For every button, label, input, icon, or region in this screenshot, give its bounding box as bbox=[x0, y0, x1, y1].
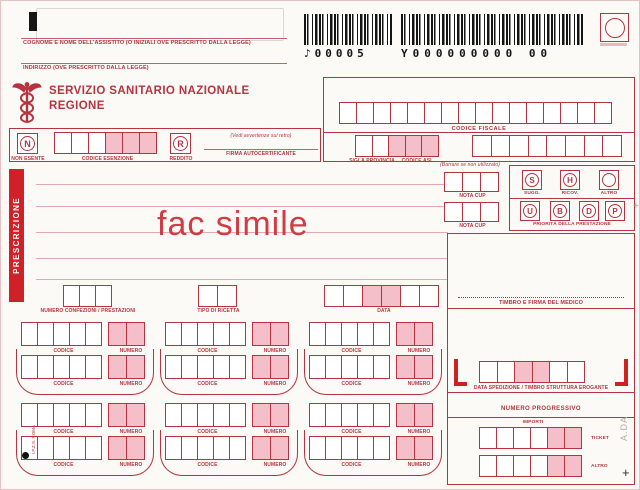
box-cell bbox=[217, 285, 237, 307]
tipologia-divider bbox=[510, 198, 634, 199]
box-cell bbox=[270, 322, 289, 346]
reddito-letter: R bbox=[173, 136, 188, 151]
box-cell bbox=[564, 455, 582, 477]
box-cell bbox=[213, 322, 230, 346]
box-cell bbox=[85, 403, 102, 427]
code-group: CODICENUMERO CODICENUMERO bbox=[304, 403, 442, 469]
box-cell bbox=[564, 427, 582, 449]
barcode-1-text: ♪00005 bbox=[304, 47, 368, 60]
box-cell bbox=[122, 132, 140, 154]
patient-name-label: COGNOME E NOME DELL'ASSISTITO (O INIZIAL… bbox=[23, 40, 251, 46]
numero-cells bbox=[396, 403, 433, 427]
box-cell bbox=[69, 322, 86, 346]
box-cell bbox=[444, 172, 463, 192]
box-cell bbox=[85, 322, 102, 346]
priorita-p-letter: P bbox=[608, 204, 622, 218]
box-cell bbox=[396, 322, 415, 346]
box-cell bbox=[414, 403, 433, 427]
data-spedizione-section: DATA SPEDIZIONE / TIMBRO STRUTTURA EROGA… bbox=[447, 308, 635, 393]
box-cell bbox=[341, 322, 358, 346]
box-cell bbox=[532, 361, 551, 383]
codice-cells bbox=[165, 322, 246, 346]
box-cell bbox=[54, 132, 72, 154]
altro-circle bbox=[602, 173, 616, 187]
numero-progressivo-label: NUMERO PROGRESSIVO bbox=[448, 406, 634, 412]
box-cell bbox=[458, 102, 476, 124]
data-spedizione-cells bbox=[479, 361, 585, 383]
stamp-logo-circle bbox=[605, 18, 625, 38]
patient-address-label: INDIRIZZO (OVE PRESCRITTO DALLA LEGGE) bbox=[23, 65, 149, 71]
box-cell bbox=[567, 361, 586, 383]
codice-cells bbox=[309, 322, 390, 346]
box-cell bbox=[362, 285, 382, 307]
box-cell bbox=[229, 322, 246, 346]
importi-altro-cells bbox=[479, 455, 582, 477]
box-cell bbox=[496, 455, 514, 477]
org-title-line1: SERVIZIO SANITARIO NAZIONALE bbox=[49, 85, 250, 97]
box-cell bbox=[496, 427, 514, 449]
barrare-note: (Barrare se non utilizzato) bbox=[430, 162, 510, 168]
importi-label: IMPORTI bbox=[483, 420, 583, 425]
box-cell bbox=[63, 285, 80, 307]
box-cell bbox=[424, 102, 442, 124]
box-cell bbox=[88, 132, 106, 154]
non-esente-letter: N bbox=[20, 136, 35, 151]
ricov-letter: H bbox=[563, 173, 577, 187]
tipologia-section: S H SUGG. RICOV. ALTRO U B D P PRIORITÀ … bbox=[509, 165, 635, 231]
codice-cells bbox=[21, 322, 102, 346]
numero-cells bbox=[252, 322, 289, 346]
barcode-2-text: Y000000000 00 bbox=[401, 47, 552, 60]
box-cell bbox=[546, 135, 566, 157]
group-bracket bbox=[16, 349, 154, 395]
box-cell bbox=[165, 322, 182, 346]
cf-divider bbox=[324, 132, 634, 133]
box-cell bbox=[414, 322, 433, 346]
registration-plus-right: + bbox=[633, 201, 639, 212]
timbro-signature-line bbox=[458, 297, 624, 298]
numero-progressivo-section: NUMERO PROGRESSIVO IMPORTI TICKET ALTRO bbox=[447, 392, 635, 485]
box-cell bbox=[514, 361, 533, 383]
box-cell bbox=[309, 322, 326, 346]
nota-cup-label-2: NOTA CUP bbox=[444, 223, 501, 229]
sugg-letter: S bbox=[525, 173, 539, 187]
firma-label: FIRMA AUTOCERTIFICANTE bbox=[202, 151, 320, 157]
box-cell bbox=[165, 403, 182, 427]
data-cells bbox=[324, 285, 439, 307]
numero-cells bbox=[252, 403, 289, 427]
box-cell bbox=[491, 135, 511, 157]
box-cell bbox=[407, 102, 425, 124]
box-cell bbox=[509, 102, 527, 124]
registration-dot bbox=[22, 452, 29, 459]
box-cell bbox=[139, 132, 157, 154]
box-cell bbox=[198, 285, 218, 307]
box-cell bbox=[492, 102, 510, 124]
box-cell bbox=[252, 322, 271, 346]
priorita-label: PRIORITÀ DELLA PRESTAZIONE bbox=[510, 222, 634, 227]
sugg-label: SUGG. bbox=[512, 191, 552, 196]
box-cell bbox=[530, 427, 548, 449]
corner-bracket-left bbox=[454, 359, 467, 386]
box-cell bbox=[357, 322, 374, 346]
box-cell bbox=[565, 135, 585, 157]
box-cell bbox=[543, 102, 561, 124]
box-cell bbox=[441, 102, 459, 124]
box-cell bbox=[373, 322, 390, 346]
stamp-logo bbox=[600, 13, 629, 42]
nota-cup-cells-2 bbox=[444, 202, 499, 222]
box-cell bbox=[547, 427, 565, 449]
reddito-label: REDDITO bbox=[160, 156, 202, 162]
data-label: DATA bbox=[324, 308, 444, 314]
ticket-label: TICKET bbox=[591, 436, 609, 441]
non-esente-checkbox: N bbox=[17, 133, 38, 154]
box-cell bbox=[229, 403, 246, 427]
box-cell bbox=[126, 403, 145, 427]
firma-line bbox=[204, 149, 318, 150]
group-bracket bbox=[16, 430, 154, 476]
registration-mark bbox=[29, 12, 37, 31]
box-cell bbox=[95, 285, 112, 307]
box-cell bbox=[419, 285, 439, 307]
box-cell bbox=[509, 135, 529, 157]
data-spedizione-label: DATA SPEDIZIONE / TIMBRO STRUTTURA EROGA… bbox=[448, 385, 634, 391]
caduceus-icon bbox=[12, 81, 42, 125]
box-cell bbox=[396, 403, 415, 427]
barcode-1 bbox=[304, 14, 392, 45]
reddito-checkbox: R bbox=[170, 133, 191, 154]
rx-ruled-line bbox=[36, 258, 448, 259]
box-cell bbox=[373, 102, 391, 124]
group-bracket bbox=[160, 349, 298, 395]
box-cell bbox=[390, 102, 408, 124]
numero-cells bbox=[108, 403, 145, 427]
numero-confezioni-cells bbox=[63, 285, 112, 307]
codice-cells bbox=[21, 403, 102, 427]
box-cell bbox=[108, 403, 127, 427]
ipzs-imprint: I.P.Z.S. ROMA bbox=[31, 425, 36, 454]
timbro-medico-section: TIMBRO E FIRMA DEL MEDICO bbox=[447, 233, 635, 309]
codice-fiscale-section: CODICE FISCALE SIGLA PROVINCIA CODICE AS… bbox=[323, 77, 635, 162]
box-cell bbox=[71, 132, 89, 154]
barcode-2 bbox=[401, 14, 583, 45]
box-cell bbox=[444, 202, 463, 222]
org-title-line2: REGIONE bbox=[49, 100, 105, 112]
rx-ruled-line bbox=[36, 184, 448, 185]
nota-cup-label-1: NOTA CUP bbox=[444, 193, 501, 199]
box-cell bbox=[560, 102, 578, 124]
box-cell bbox=[270, 403, 289, 427]
box-cell bbox=[324, 285, 344, 307]
box-cell bbox=[325, 322, 342, 346]
ricov-label: RICOV. bbox=[550, 191, 590, 196]
box-cell bbox=[37, 403, 54, 427]
box-cell bbox=[497, 361, 516, 383]
box-cell bbox=[549, 361, 568, 383]
box-cell bbox=[21, 322, 38, 346]
patient-address-line bbox=[21, 63, 287, 64]
prescription-form: COGNOME E NOME DELL'ASSISTITO (O INIZIAL… bbox=[0, 0, 640, 490]
group-bracket bbox=[304, 349, 442, 395]
cf-extra-cells bbox=[472, 135, 622, 157]
box-cell bbox=[513, 427, 531, 449]
box-cell bbox=[108, 322, 127, 346]
box-cell bbox=[357, 403, 374, 427]
priorita-d-letter: D bbox=[582, 204, 596, 218]
box-cell bbox=[381, 285, 401, 307]
tipo-ricetta-label: TIPO DI RICETTA bbox=[176, 308, 261, 314]
codice-fiscale-cells bbox=[339, 102, 612, 124]
box-cell bbox=[309, 403, 326, 427]
prescrizione-sidebar: PRESCRIZIONE bbox=[9, 169, 24, 302]
box-cell bbox=[53, 403, 70, 427]
box-cell bbox=[343, 285, 363, 307]
fac-simile-watermark: fac simile bbox=[157, 205, 309, 244]
box-cell bbox=[325, 403, 342, 427]
box-cell bbox=[21, 403, 38, 427]
patient-name-line bbox=[21, 38, 287, 39]
box-cell bbox=[53, 322, 70, 346]
box-cell bbox=[126, 322, 145, 346]
group-bracket bbox=[304, 430, 442, 476]
box-cell bbox=[528, 135, 548, 157]
corner-bracket-right bbox=[615, 359, 628, 386]
codice-esenzione-label: CODICE ESENZIONE bbox=[54, 156, 161, 162]
box-cell bbox=[472, 135, 492, 157]
priorita-u-letter: U bbox=[523, 204, 537, 218]
box-cell bbox=[526, 102, 544, 124]
code-group: CODICENUMERO CODICENUMERO bbox=[304, 322, 442, 388]
box-cell bbox=[197, 322, 214, 346]
box-cell bbox=[513, 455, 531, 477]
importi-ticket-cells bbox=[479, 427, 582, 449]
box-cell bbox=[181, 403, 198, 427]
box-cell bbox=[69, 403, 86, 427]
avvertenze-note: (Vedi avvertenze sul retro) bbox=[202, 133, 320, 139]
box-cell bbox=[462, 202, 481, 222]
tipo-ricetta-cells bbox=[198, 285, 237, 307]
box-cell bbox=[421, 135, 439, 157]
numero-confezioni-label: NUMERO CONFEZIONI / PRESTAZIONI bbox=[29, 308, 147, 314]
box-cell bbox=[213, 403, 230, 427]
ghost-field-outline bbox=[36, 8, 284, 41]
altro-importo-label: ALTRO bbox=[591, 464, 608, 469]
box-cell bbox=[479, 427, 497, 449]
progressivo-divider bbox=[448, 417, 634, 418]
registration-plus-bottom: + bbox=[622, 465, 630, 480]
box-cell bbox=[577, 102, 595, 124]
codice-cells bbox=[309, 403, 390, 427]
box-cell bbox=[388, 135, 406, 157]
ada-edge-text: A.DA bbox=[619, 416, 629, 441]
box-cell bbox=[197, 403, 214, 427]
box-cell bbox=[594, 102, 612, 124]
box-cell bbox=[355, 135, 373, 157]
box-cell bbox=[37, 322, 54, 346]
box-cell bbox=[479, 455, 497, 477]
code-group: CODICENUMERO CODICENUMERO bbox=[16, 322, 154, 388]
box-cell bbox=[405, 135, 423, 157]
timbro-medico-label: TIMBRO E FIRMA DEL MEDICO bbox=[448, 300, 634, 306]
box-cell bbox=[462, 172, 481, 192]
numero-cells bbox=[108, 322, 145, 346]
esenzione-section: N NON ESENTE CODICE ESENZIONE R REDDITO … bbox=[9, 128, 321, 162]
group-bracket bbox=[160, 430, 298, 476]
box-cell bbox=[341, 403, 358, 427]
box-cell bbox=[479, 361, 498, 383]
code-group: CODICENUMERO CODICENUMERO bbox=[160, 403, 298, 469]
box-cell bbox=[79, 285, 96, 307]
box-cell bbox=[105, 132, 123, 154]
priorita-u-checkbox: U bbox=[520, 201, 540, 221]
priorita-b-letter: B bbox=[553, 204, 567, 218]
box-cell bbox=[584, 135, 604, 157]
priorita-b-checkbox: B bbox=[550, 201, 570, 221]
box-cell bbox=[602, 135, 622, 157]
rx-ruled-line bbox=[36, 279, 448, 280]
box-cell bbox=[475, 102, 493, 124]
stamp-caption bbox=[600, 43, 627, 46]
codice-esenzione-cells bbox=[54, 132, 157, 154]
priorita-p-checkbox: P bbox=[605, 201, 625, 221]
box-cell bbox=[252, 403, 271, 427]
box-cell bbox=[530, 455, 548, 477]
prescrizione-label: PRESCRIZIONE bbox=[12, 197, 21, 274]
non-esente-label: NON ESENTE bbox=[7, 156, 49, 162]
box-cell bbox=[372, 135, 390, 157]
ricov-checkbox: H bbox=[560, 170, 580, 190]
box-cell bbox=[547, 455, 565, 477]
code-group: CODICENUMERO CODICENUMERO bbox=[160, 322, 298, 388]
box-cell bbox=[181, 322, 198, 346]
altro-label: ALTRO bbox=[589, 191, 629, 196]
sugg-checkbox: S bbox=[522, 170, 542, 190]
numero-cells bbox=[396, 322, 433, 346]
box-cell bbox=[480, 202, 499, 222]
nota-cup-cells-1 bbox=[444, 172, 499, 192]
box-cell bbox=[339, 102, 357, 124]
priorita-d-checkbox: D bbox=[579, 201, 599, 221]
box-cell bbox=[400, 285, 420, 307]
box-cell bbox=[373, 403, 390, 427]
code-group: CODICENUMERO CODICENUMERO bbox=[16, 403, 154, 469]
provincia-asl-cells bbox=[355, 135, 439, 157]
altro-checkbox bbox=[599, 170, 619, 190]
box-cell bbox=[480, 172, 499, 192]
box-cell bbox=[356, 102, 374, 124]
codice-cells bbox=[165, 403, 246, 427]
